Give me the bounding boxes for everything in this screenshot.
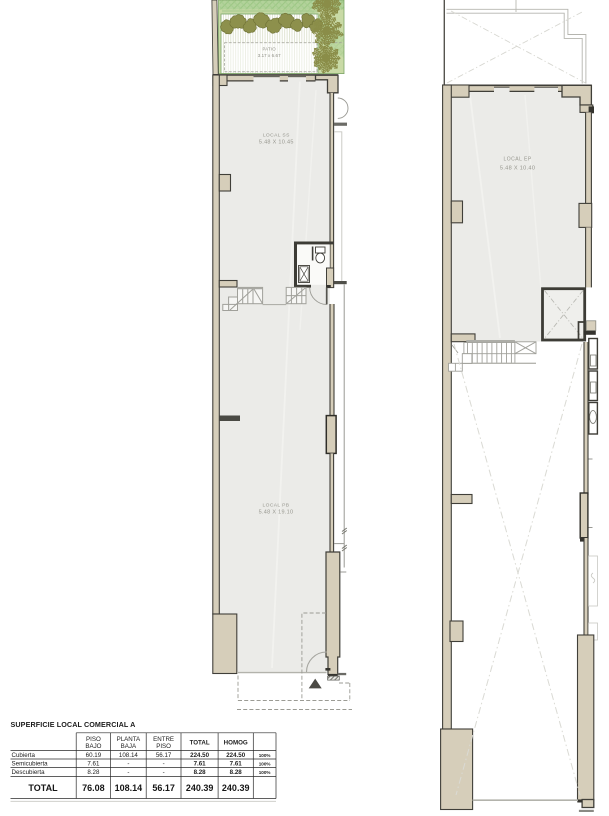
svg-text:-: - — [163, 761, 165, 768]
svg-text:PISO: PISO — [156, 743, 171, 750]
svg-text:Descubierta: Descubierta — [12, 769, 46, 776]
svg-text:Semicubierta: Semicubierta — [12, 761, 49, 768]
svg-text:7.61: 7.61 — [87, 761, 100, 768]
svg-text:Cubierta: Cubierta — [12, 752, 36, 759]
svg-text:8.28: 8.28 — [230, 769, 243, 776]
svg-text:SUPERFICIE LOCAL COMERCIAL A: SUPERFICIE LOCAL COMERCIAL A — [11, 720, 136, 729]
svg-text:56.17: 56.17 — [152, 783, 175, 793]
svg-text:-: - — [127, 761, 129, 768]
svg-text:TOTAL: TOTAL — [28, 783, 58, 793]
svg-text:PLANTA: PLANTA — [117, 736, 141, 743]
svg-text:HOMOG: HOMOG — [224, 740, 248, 747]
svg-text:56.17: 56.17 — [156, 752, 172, 759]
svg-text:108.14: 108.14 — [119, 752, 138, 759]
svg-text:8.28: 8.28 — [194, 769, 207, 776]
svg-text:240.39: 240.39 — [222, 783, 250, 793]
svg-text:108.14: 108.14 — [115, 783, 143, 793]
svg-text:TOTAL: TOTAL — [190, 740, 210, 747]
svg-text:7.61: 7.61 — [194, 761, 207, 768]
svg-text:224.50: 224.50 — [190, 752, 209, 759]
svg-text:-: - — [127, 769, 129, 776]
svg-text:240.39: 240.39 — [186, 783, 214, 793]
svg-text:76.08: 76.08 — [82, 783, 105, 793]
svg-text:PATIO: PATIO — [262, 47, 276, 52]
svg-text:LOCAL SS: LOCAL SS — [263, 133, 290, 139]
svg-text:5.48 X 19.10: 5.48 X 19.10 — [259, 510, 294, 516]
svg-text:8.28: 8.28 — [87, 769, 100, 776]
svg-text:100%: 100% — [259, 762, 271, 767]
svg-text:3.17 x 6.67: 3.17 x 6.67 — [258, 53, 281, 58]
svg-text:PISO: PISO — [86, 736, 101, 743]
svg-text:BAJO: BAJO — [85, 743, 101, 750]
svg-text:ENTRE: ENTRE — [153, 736, 174, 743]
svg-text:60.19: 60.19 — [86, 752, 102, 759]
svg-text:5.48 X 10.45: 5.48 X 10.45 — [259, 140, 294, 146]
svg-text:100%: 100% — [259, 753, 271, 758]
svg-text:5.48 X 10.40: 5.48 X 10.40 — [500, 165, 535, 171]
svg-text:LOCAL PB: LOCAL PB — [263, 502, 290, 508]
svg-text:224.50: 224.50 — [226, 752, 245, 759]
svg-text:7.61: 7.61 — [230, 761, 243, 768]
svg-text:-: - — [163, 769, 165, 776]
svg-text:LOCAL EP: LOCAL EP — [503, 156, 531, 162]
svg-text:100%: 100% — [259, 770, 271, 775]
svg-text:BAJA: BAJA — [121, 743, 137, 750]
